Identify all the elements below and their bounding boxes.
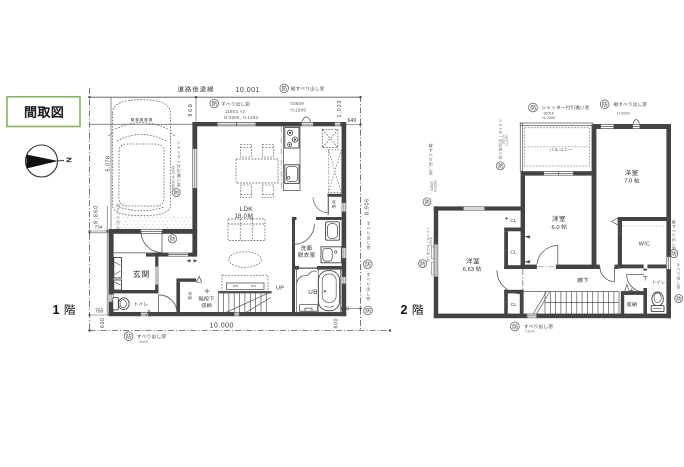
svg-text:UB: UB [308,289,317,296]
svg-text:UP: UP [276,285,284,291]
svg-text:8,906: 8,906 [364,198,370,215]
svg-text:968: 968 [188,102,194,116]
svg-text:7.0: 7.0 [624,179,632,185]
svg-text:H-2050: H-2050 [505,134,509,145]
svg-text:18.0: 18.0 [235,214,248,220]
svg-text:03605: 03605 [526,329,536,333]
svg-text:5.078: 5.078 [105,156,111,172]
svg-text:H:2900: H:2900 [291,107,307,112]
svg-text:H-2300: H-2300 [434,180,438,192]
svg-text:734: 734 [95,225,103,231]
svg-text:1: 1 [53,303,60,317]
svg-text:10.000: 10.000 [210,323,234,330]
svg-text:WIC: WIC [639,242,651,248]
svg-text:2: 2 [401,303,408,317]
svg-text:03605: 03605 [139,340,149,344]
svg-text:6.63: 6.63 [463,267,474,273]
svg-text:LDK: LDK [240,206,254,213]
svg-text:600: 600 [334,318,340,329]
svg-text:CL: CL [511,302,517,308]
svg-text:H-2000: H-2000 [617,111,631,116]
svg-text:H:2000, H:1400: H:2000, H:1400 [224,115,259,120]
svg-text:1,023: 1,023 [337,100,343,118]
svg-text:8,860: 8,860 [94,205,100,225]
svg-text:6.0: 6.0 [552,225,560,231]
svg-text:03609: 03609 [291,101,305,106]
svg-text:CL: CL [510,218,516,224]
svg-text:600: 600 [100,317,106,328]
svg-text:10.001: 10.001 [236,87,260,94]
svg-text:16020 H-2000: 16020 H-2000 [172,166,176,190]
svg-text:CL: CL [510,249,516,255]
svg-text:649: 649 [348,118,357,124]
svg-text:755: 755 [95,309,104,315]
svg-text:N: N [65,157,74,162]
svg-text:11903 ×2: 11903 ×2 [225,109,245,114]
svg-text:H-2000: H-2000 [432,236,436,247]
svg-text:H-2050: H-2050 [543,115,557,120]
